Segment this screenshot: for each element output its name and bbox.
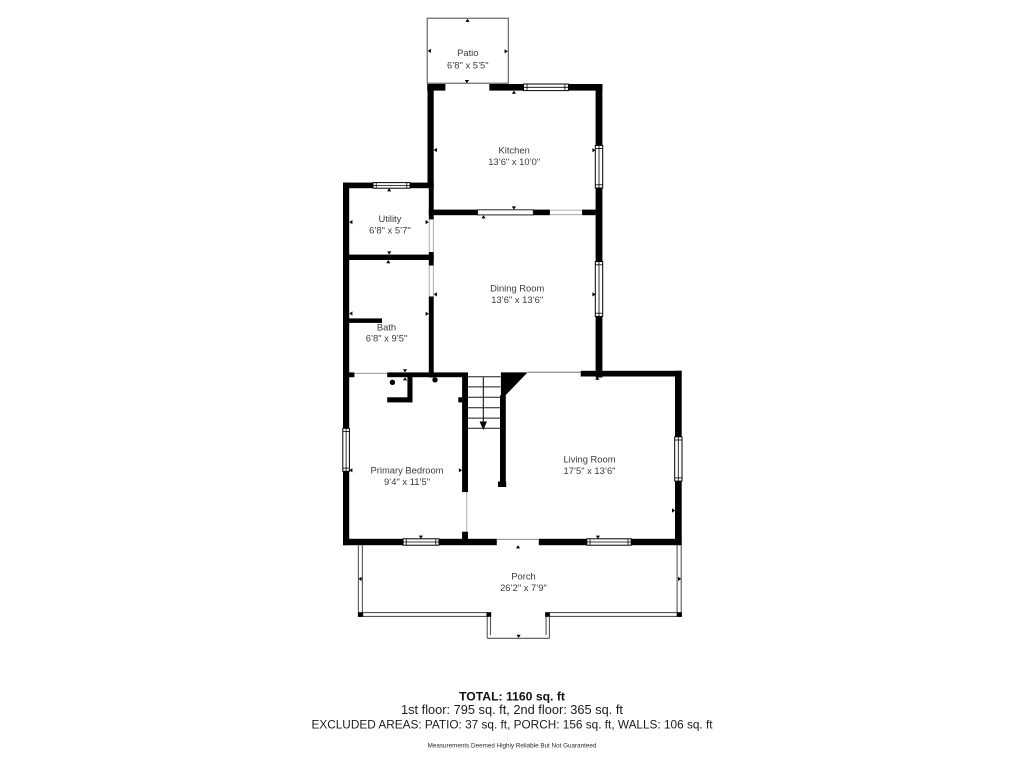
svg-text:Utility: Utility [378, 213, 401, 224]
svg-text:13’6" x 10’0": 13’6" x 10’0" [488, 156, 540, 167]
svg-text:26’2" x 7’9": 26’2" x 7’9" [500, 582, 547, 593]
svg-text:Patio: Patio [457, 47, 478, 58]
svg-text:Measurements Deemed Highly Rel: Measurements Deemed Highly Reliable But … [428, 742, 597, 749]
svg-text:Porch: Porch [511, 571, 536, 582]
svg-text:EXCLUDED AREAS: PATIO: 37 sq.: EXCLUDED AREAS: PATIO: 37 sq. ft, PORCH:… [311, 717, 713, 731]
svg-text:17’5" x 13’6": 17’5" x 13’6" [563, 465, 615, 476]
svg-text:Primary Bedroom: Primary Bedroom [371, 465, 444, 476]
svg-text:9’4" x 11’5": 9’4" x 11’5" [384, 476, 430, 487]
svg-text:1st floor: 795 sq. ft, 2nd flo: 1st floor: 795 sq. ft, 2nd floor: 365 sq… [401, 702, 623, 717]
svg-text:13’6" x 13’6": 13’6" x 13’6" [491, 294, 543, 305]
svg-text:6’8" x 5’7": 6’8" x 5’7" [369, 225, 411, 236]
svg-text:6’8" x 5’5": 6’8" x 5’5" [447, 59, 489, 70]
svg-text:Dining Room: Dining Room [490, 283, 544, 294]
svg-text:6’8" x 9’5": 6’8" x 9’5" [366, 333, 408, 344]
svg-text:Living Room: Living Room [563, 454, 615, 465]
svg-text:Kitchen: Kitchen [499, 145, 530, 156]
svg-text:Bath: Bath [377, 321, 396, 332]
